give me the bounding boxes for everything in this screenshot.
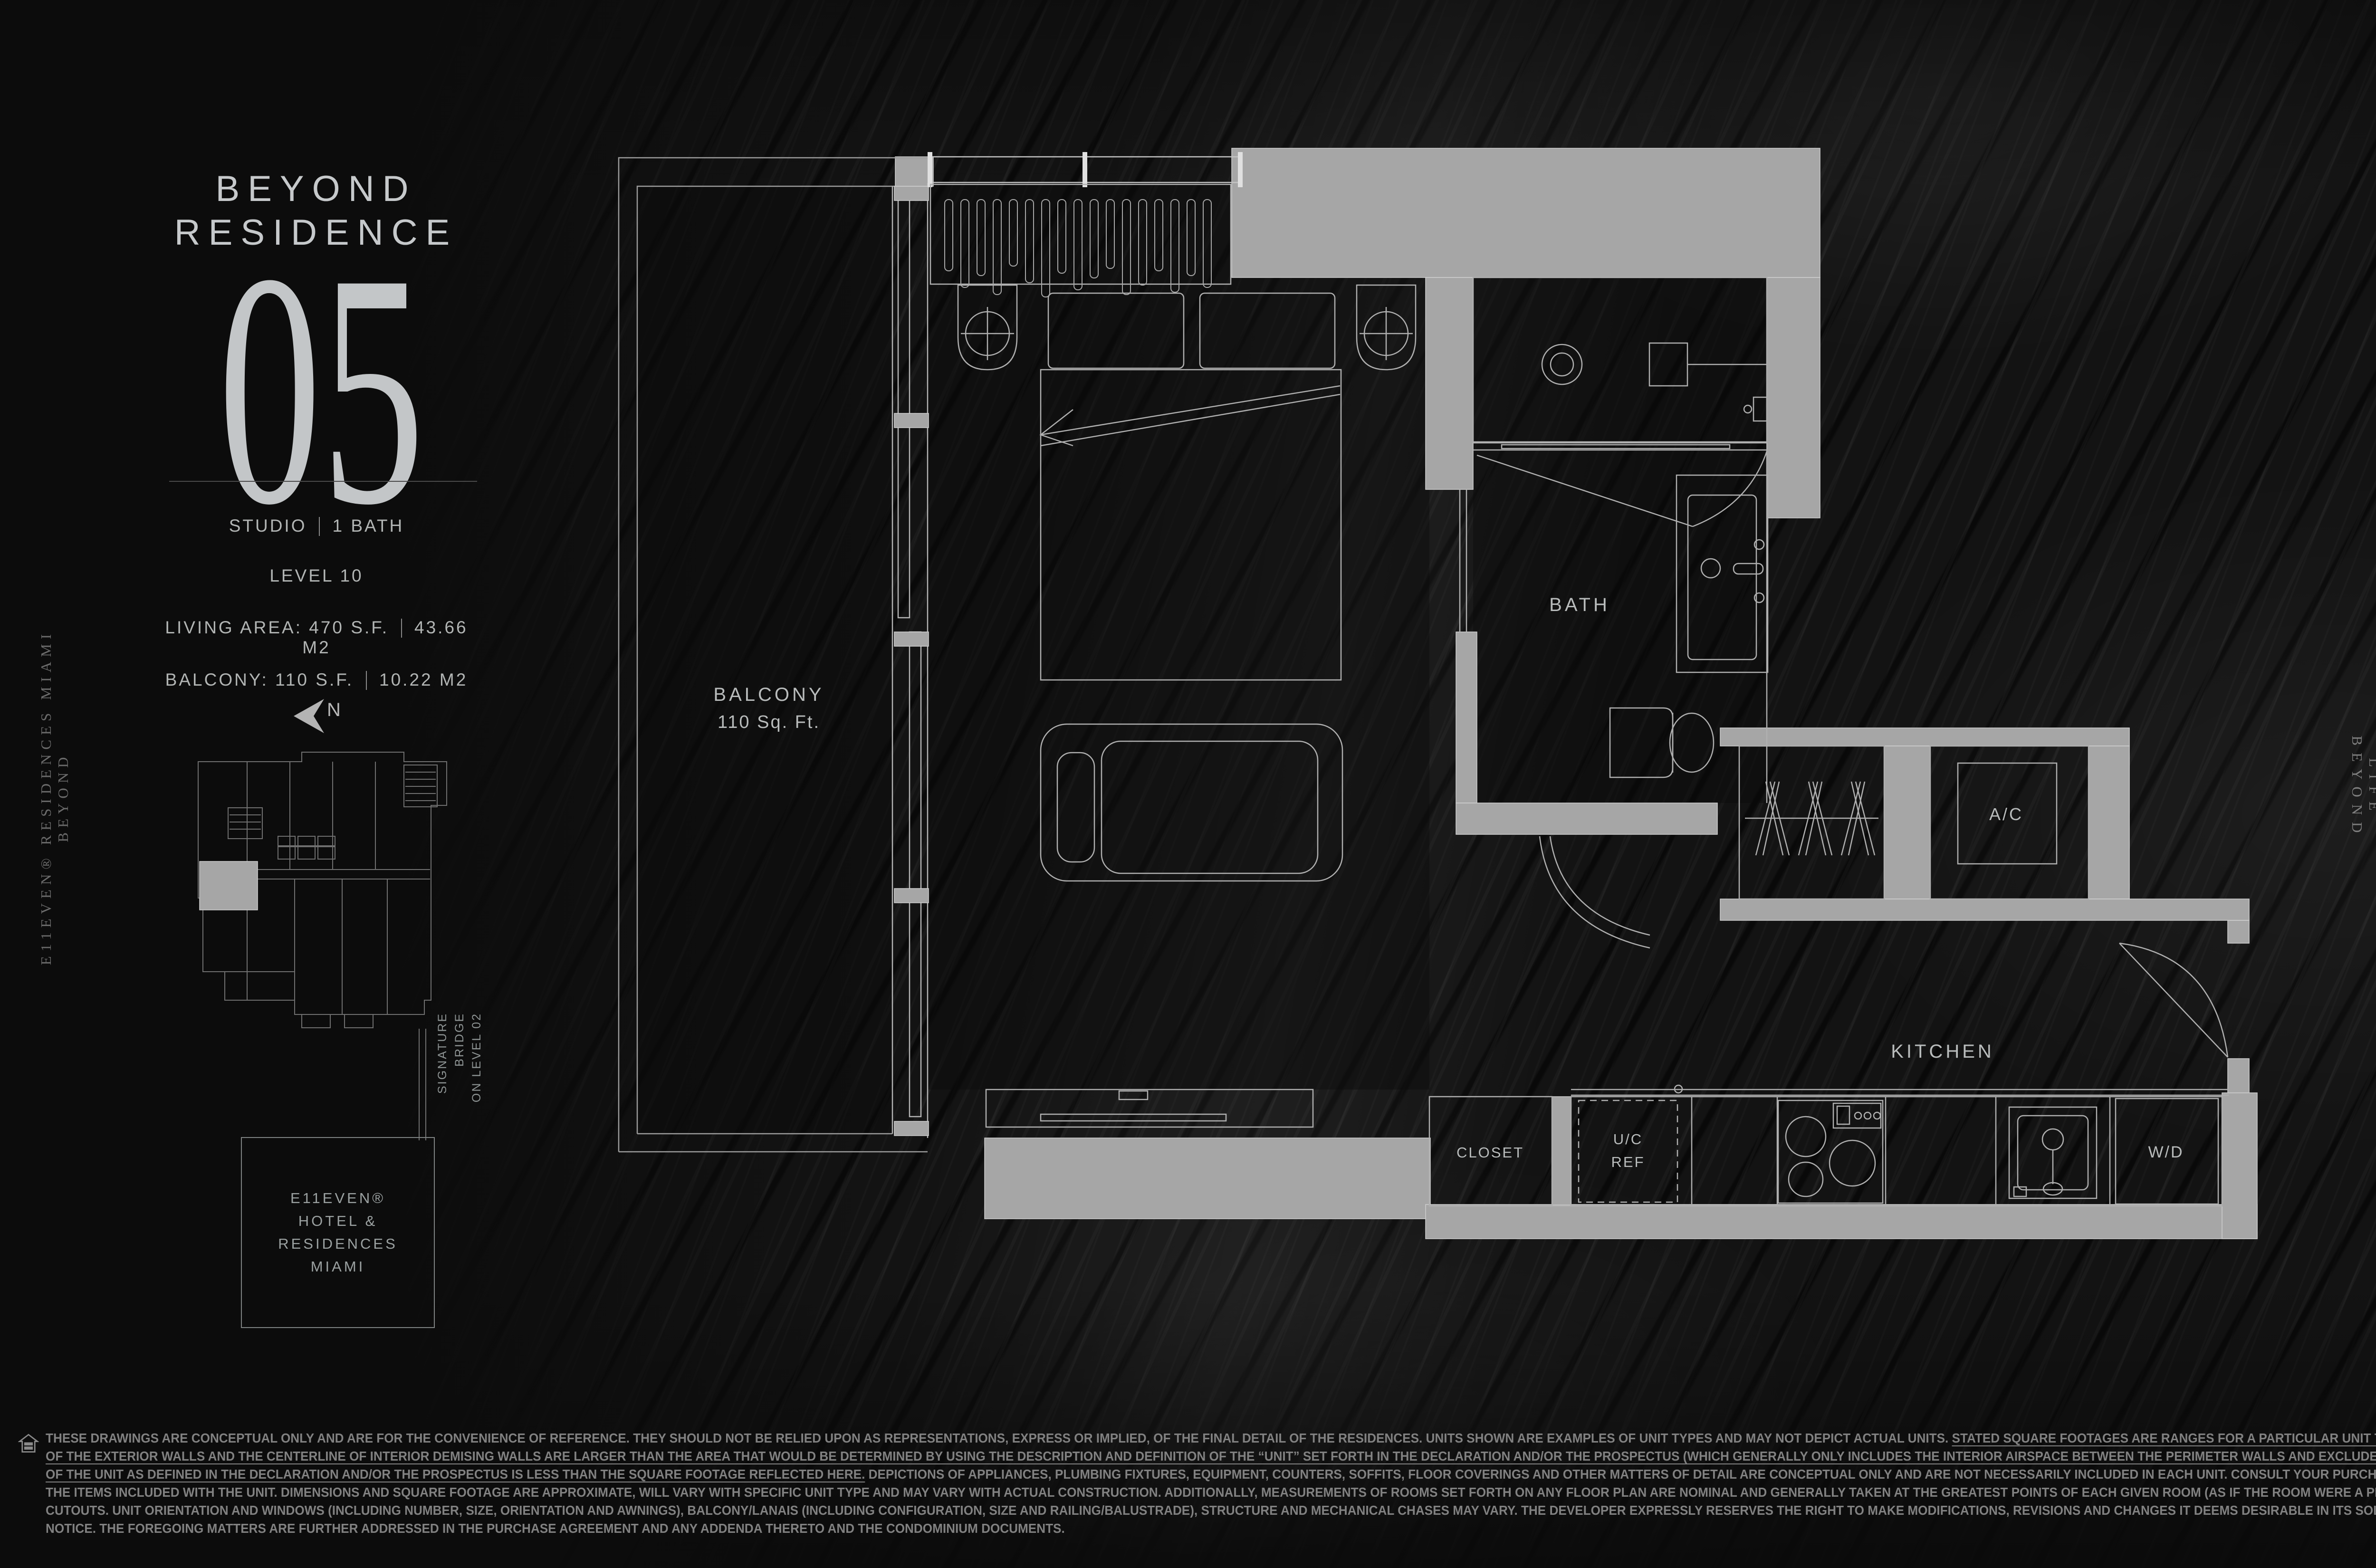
tv-mount <box>1119 1091 1148 1100</box>
slider-panel <box>910 632 921 1117</box>
window-mullion <box>1083 152 1087 187</box>
kitchen-label: KITCHEN <box>1891 1041 1994 1062</box>
wd-label: W/D <box>2148 1143 2184 1161</box>
disclaimer-line-5: CUTOUTS. UNIT ORIENTATION AND WINDOWS (I… <box>46 1501 2299 1520</box>
title-line-1: BEYOND <box>157 167 475 211</box>
wall-closet-top-band <box>1720 728 2129 746</box>
stat-type-bath: STUDIO1 BATH <box>157 516 476 536</box>
left-vertical-brand: E11EVEN® RESIDENCES MIAMI BEYOND <box>38 620 72 975</box>
north-label: N <box>327 699 342 721</box>
slider-mullion <box>894 889 929 903</box>
right-vertical-brand: LIFE BEYOND <box>2348 712 2376 864</box>
wall-closet-separator <box>1884 746 1930 899</box>
wall-wc-left <box>1456 632 1477 803</box>
kitchen-cabinet-run <box>1571 1097 2222 1206</box>
wall-kitchen-right <box>2222 1093 2257 1239</box>
equal-housing-icon <box>18 1433 39 1454</box>
legal-disclaimer: THESE DRAWINGS ARE CONCEPTUAL ONLY AND A… <box>46 1429 2299 1538</box>
floor-plan: BALCONY 110 Sq. Ft. BATH A/C KITCHEN CLO… <box>608 128 2281 1250</box>
key-plan-highlighted-unit <box>200 861 258 910</box>
bath-floor <box>1473 277 1767 803</box>
wall-bottom-band-kitchen <box>1426 1205 2257 1239</box>
signature-bridge-line2: BRIDGE <box>451 1013 468 1160</box>
signature-bridge-note: SIGNATURE BRIDGE ON LEVEL 02 <box>434 1013 485 1160</box>
balcony-area-label: 110 Sq. Ft. <box>718 712 820 732</box>
slider-mullion <box>894 632 929 646</box>
stat-separator <box>401 619 402 638</box>
hotel-box-line3: MIAMI <box>242 1255 434 1278</box>
wall-bottom-band-living <box>985 1138 1430 1219</box>
slider-panel <box>898 200 910 618</box>
north-arrow-icon <box>294 699 324 733</box>
disclaimer-line-1: THESE DRAWINGS ARE CONCEPTUAL ONLY AND A… <box>46 1429 2299 1447</box>
hotel-residences-box: E11EVEN® HOTEL & RESIDENCES MIAMI <box>241 1137 435 1328</box>
disclaimer-line-6: NOTICE. THE FOREGOING MATTERS ARE FURTHE… <box>46 1520 2299 1538</box>
balcony-label: BALCONY <box>713 684 824 705</box>
burner-icon <box>1789 1162 1823 1196</box>
wall-shower-left <box>1426 277 1473 489</box>
stat-separator <box>366 671 367 690</box>
wall-kitchen-separator <box>1552 1097 1571 1205</box>
cooktop <box>1778 1100 1883 1203</box>
faucet-icon <box>2042 1129 2063 1150</box>
stat-living-sf: LIVING AREA: 470 S.F. <box>165 618 389 637</box>
bath-label: BATH <box>1549 594 1610 615</box>
uc-ref-label-1: U/C <box>1613 1131 1643 1147</box>
disclaimer-line-3: OF THE UNIT AS DEFINED IN THE DECLARATIO… <box>46 1465 2299 1483</box>
uc-ref-cell <box>1579 1100 1677 1202</box>
window-mullion <box>928 152 932 187</box>
divider-top <box>169 481 477 482</box>
hotel-box-line1: E11EVEN® <box>242 1187 434 1210</box>
bath-door-swing <box>1550 836 1650 935</box>
burner-icon <box>1786 1117 1826 1157</box>
stat-level: LEVEL 10 <box>157 566 476 586</box>
living-floor <box>928 183 1429 1090</box>
stat-balcony: BALCONY: 110 S.F.10.22 M2 <box>157 670 476 690</box>
burner-icon <box>1830 1140 1875 1186</box>
window-mullion <box>1238 152 1243 187</box>
unit-number: 05 <box>218 223 414 556</box>
uc-ref-label-2: REF <box>1611 1154 1645 1170</box>
closet-label: CLOSET <box>1456 1144 1524 1161</box>
key-plan <box>188 734 468 1143</box>
control-switch <box>1837 1106 1849 1124</box>
hotel-box-line2: HOTEL & RESIDENCES <box>242 1210 434 1255</box>
wall-closet-bottom-band <box>1720 899 2249 920</box>
signature-bridge-line3: ON LEVEL 02 <box>468 1013 485 1160</box>
balcony-floor <box>637 186 892 1134</box>
wall-entry-jamb-top <box>2228 920 2249 943</box>
wall-closet-right <box>2089 746 2129 899</box>
ac-label: A/C <box>1989 804 2023 824</box>
stat-baths: 1 BATH <box>332 516 404 535</box>
stat-balcony-sf: BALCONY: 110 S.F. <box>165 670 354 689</box>
wall-wc-bottom <box>1456 803 1717 834</box>
wall-top-right-mass <box>1232 148 1820 277</box>
slider-mullion <box>894 186 929 201</box>
slider-mullion <box>894 413 929 428</box>
stat-unit-type: STUDIO <box>229 516 307 535</box>
stat-balcony-m2: 10.22 M2 <box>379 670 468 689</box>
stat-living-area: LIVING AREA: 470 S.F.43.66 M2 <box>157 618 476 658</box>
disclaimer-line-4: THE ITEMS INCLUDED WITH THE UNIT. DIMENS… <box>46 1483 2299 1501</box>
entry-door-leaf <box>2119 943 2228 1057</box>
tv-screen <box>1041 1114 1226 1121</box>
stat-separator <box>319 517 320 536</box>
disclaimer-line-2: OF THE EXTERIOR WALLS AND THE CENTERLINE… <box>46 1447 2299 1465</box>
wall-shower-right <box>1767 277 1820 518</box>
slider-mullion <box>894 1121 929 1136</box>
signature-bridge-line1: SIGNATURE <box>434 1013 451 1160</box>
